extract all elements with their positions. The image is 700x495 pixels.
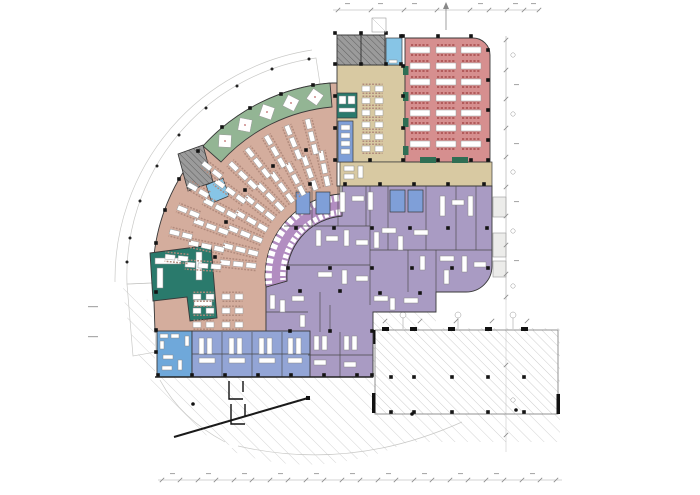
floor-plan-document bbox=[0, 0, 700, 495]
lift-door bbox=[389, 60, 397, 63]
dimension-marks-left bbox=[88, 306, 98, 337]
adjacent-building-outline bbox=[375, 330, 558, 414]
floor-plan-canvas bbox=[0, 0, 700, 495]
loading-dock bbox=[493, 197, 506, 277]
dining-hall-tables bbox=[410, 45, 481, 149]
dimension-line-top bbox=[333, 2, 541, 32]
dimension-line-bottom bbox=[158, 473, 562, 482]
core-lift-block bbox=[337, 35, 402, 65]
north-arrow bbox=[443, 2, 449, 9]
washroom-block bbox=[157, 331, 310, 377]
